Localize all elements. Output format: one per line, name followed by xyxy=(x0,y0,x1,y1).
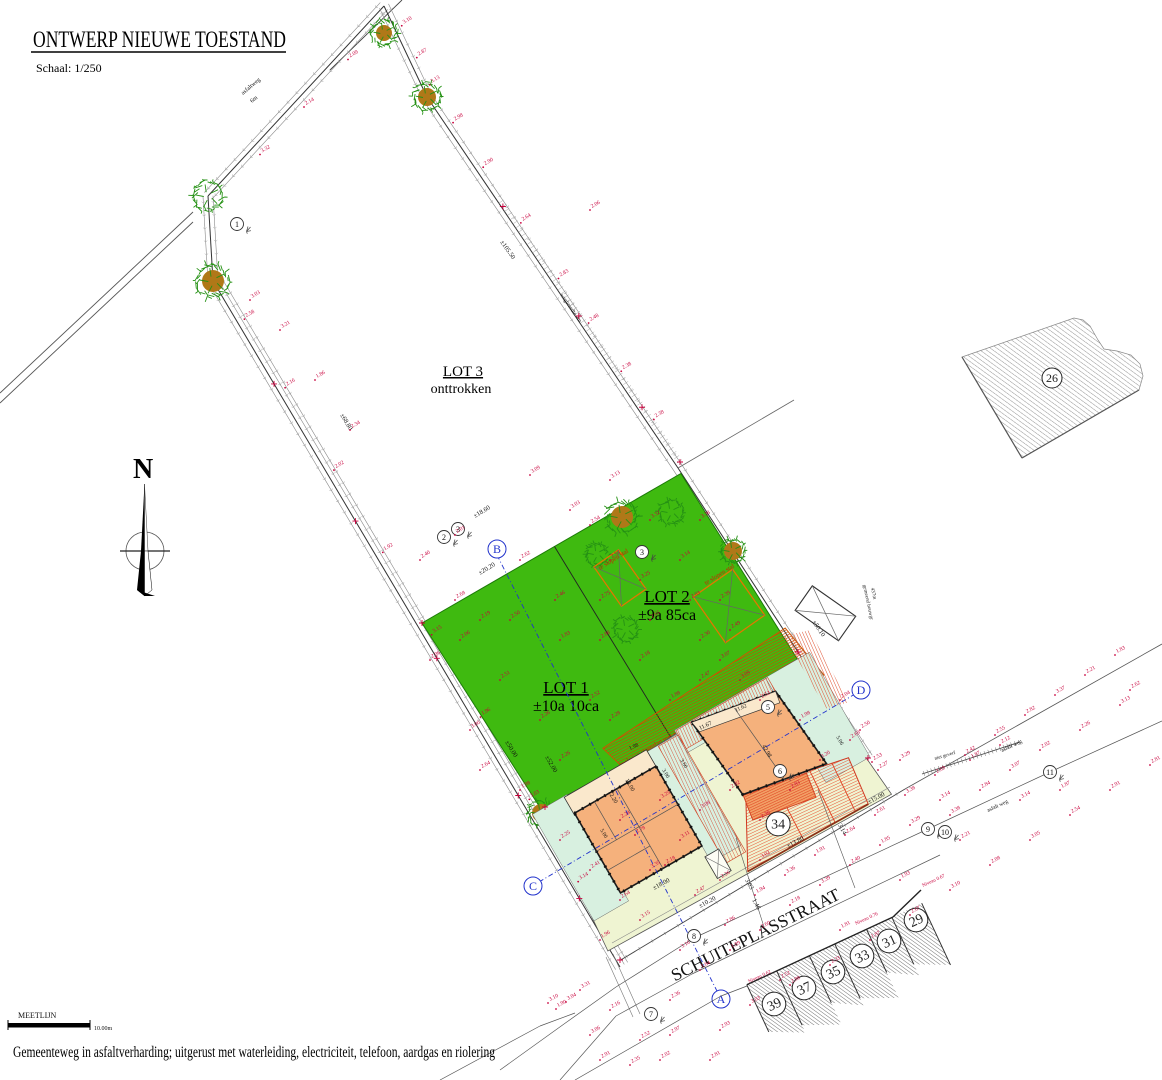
svg-text:2.38: 2.38 xyxy=(621,361,633,371)
svg-text:3.36: 3.36 xyxy=(785,865,797,875)
svg-text:C: C xyxy=(529,879,537,893)
svg-text:2.84: 2.84 xyxy=(980,780,992,790)
svg-text:ONTWERP NIEUWE TOESTAND: ONTWERP NIEUWE TOESTAND xyxy=(33,27,286,52)
svg-text:2.02: 2.02 xyxy=(660,1050,672,1060)
svg-text:niet geverf: niet geverf xyxy=(934,751,956,762)
svg-text:LOT 2: LOT 2 xyxy=(644,587,690,606)
svg-text:2.62: 2.62 xyxy=(520,550,532,560)
svg-text:1: 1 xyxy=(235,220,239,229)
svg-text:2.16: 2.16 xyxy=(610,1000,622,1010)
svg-text:Gemeenteweg in asfaltverhardin: Gemeenteweg in asfaltverharding; uitgeru… xyxy=(13,1044,495,1061)
svg-text:3.21: 3.21 xyxy=(280,320,292,330)
svg-text:2.53: 2.53 xyxy=(872,752,884,762)
svg-text:3.29: 3.29 xyxy=(900,750,912,760)
svg-text:Niveau 0.67: Niveau 0.67 xyxy=(922,874,947,889)
svg-text:LOT 3: LOT 3 xyxy=(443,364,483,380)
svg-text:6: 6 xyxy=(778,767,782,776)
svg-text:±105.50: ±105.50 xyxy=(498,239,516,261)
svg-text:2.91: 2.91 xyxy=(1110,780,1122,790)
svg-text:26: 26 xyxy=(1046,371,1058,385)
svg-text:LOT 1: LOT 1 xyxy=(543,678,589,697)
svg-text:2: 2 xyxy=(442,533,446,542)
svg-text:8: 8 xyxy=(692,932,696,941)
svg-text:9: 9 xyxy=(926,825,930,834)
svg-text:7: 7 xyxy=(649,1010,653,1019)
svg-text:10: 10 xyxy=(941,828,949,837)
svg-text:34: 34 xyxy=(771,818,785,833)
svg-text:3.09: 3.09 xyxy=(530,465,542,475)
svg-text:A: A xyxy=(717,992,726,1006)
svg-text:2.62: 2.62 xyxy=(1130,680,1142,690)
svg-text:11: 11 xyxy=(1046,768,1054,777)
svg-text:2.91: 2.91 xyxy=(600,1050,612,1060)
svg-text:2.02: 2.02 xyxy=(1040,740,1052,750)
svg-text:2.21: 2.21 xyxy=(960,830,972,840)
svg-text:3.38: 3.38 xyxy=(950,805,962,815)
svg-text:2.81: 2.81 xyxy=(710,1050,722,1060)
svg-text:3.29: 3.29 xyxy=(910,815,922,825)
svg-text:1.85: 1.85 xyxy=(880,835,892,845)
svg-text:2.36: 2.36 xyxy=(670,990,682,1000)
svg-text:asfaltweg: asfaltweg xyxy=(240,76,262,96)
svg-text:2.40: 2.40 xyxy=(850,855,862,865)
svg-text:1.94: 1.94 xyxy=(755,885,767,895)
svg-text:3.04: 3.04 xyxy=(566,992,578,1002)
svg-text:2.40: 2.40 xyxy=(420,550,432,560)
svg-text:wegbreedte 4m: wegbreedte 4m xyxy=(558,293,583,325)
svg-text:2.06: 2.06 xyxy=(590,200,602,210)
svg-text:2.54: 2.54 xyxy=(1070,805,1082,815)
svg-text:3.07: 3.07 xyxy=(1010,760,1022,770)
svg-text:±9a 85ca: ±9a 85ca xyxy=(638,607,696,624)
svg-text:2.58: 2.58 xyxy=(244,309,256,319)
svg-text:10.00m: 10.00m xyxy=(94,1026,113,1032)
svg-text:1.92: 1.92 xyxy=(383,542,395,552)
svg-text:2.27: 2.27 xyxy=(878,760,890,770)
svg-text:2.34: 2.34 xyxy=(350,420,362,430)
svg-text:3.31: 3.31 xyxy=(580,980,592,990)
svg-text:1.86: 1.86 xyxy=(315,370,327,380)
svg-text:Schaal: 1/250: Schaal: 1/250 xyxy=(36,61,102,75)
svg-text:onttrokken: onttrokken xyxy=(431,382,492,397)
svg-text:B: B xyxy=(493,542,501,556)
svg-text:2.55: 2.55 xyxy=(995,725,1007,735)
svg-text:3: 3 xyxy=(640,548,644,557)
svg-text:3.38: 3.38 xyxy=(905,785,917,795)
svg-text:2.97: 2.97 xyxy=(670,1025,682,1035)
svg-text:3.03: 3.03 xyxy=(570,500,582,510)
svg-text:MEETLIJN: MEETLIJN xyxy=(18,1011,56,1020)
svg-text:3.37: 3.37 xyxy=(1055,685,1067,695)
svg-text:N: N xyxy=(133,454,153,485)
svg-text:2.64: 2.64 xyxy=(480,760,492,770)
svg-text:1.83: 1.83 xyxy=(1115,645,1127,655)
svg-text:3.13: 3.13 xyxy=(1120,695,1132,705)
svg-text:3.39: 3.39 xyxy=(820,875,832,885)
svg-text:3.03: 3.03 xyxy=(743,878,755,891)
svg-text:2.81: 2.81 xyxy=(1150,755,1162,765)
svg-text:2.93: 2.93 xyxy=(720,1020,732,1030)
svg-text:1.87: 1.87 xyxy=(1060,780,1072,790)
svg-text:3.03: 3.03 xyxy=(250,290,262,300)
svg-text:3.14: 3.14 xyxy=(1020,790,1032,800)
svg-text:2.16: 2.16 xyxy=(285,377,297,387)
svg-text:3.05: 3.05 xyxy=(1030,830,1042,840)
svg-text:2.02: 2.02 xyxy=(334,460,346,470)
svg-text:1.91: 1.91 xyxy=(815,845,827,855)
svg-text:2.21: 2.21 xyxy=(1085,665,1097,675)
svg-text:1.93: 1.93 xyxy=(900,870,912,880)
svg-text:2.90: 2.90 xyxy=(483,157,495,167)
svg-text:3.13: 3.13 xyxy=(610,470,622,480)
svg-text:2.83: 2.83 xyxy=(559,268,571,278)
svg-text:3.10: 3.10 xyxy=(950,880,962,890)
svg-text:2.26: 2.26 xyxy=(1080,720,1092,730)
svg-text:3.10: 3.10 xyxy=(402,15,414,25)
svg-text:3.13: 3.13 xyxy=(430,74,442,84)
svg-text:2.35: 2.35 xyxy=(630,1055,642,1065)
svg-text:2.52: 2.52 xyxy=(640,1030,652,1040)
svg-text:2.08: 2.08 xyxy=(990,855,1002,865)
svg-text:2.87: 2.87 xyxy=(417,47,429,57)
svg-text:6m: 6m xyxy=(249,95,259,105)
svg-text:2.64: 2.64 xyxy=(521,212,533,222)
svg-text:2.50: 2.50 xyxy=(860,720,872,730)
svg-text:2.38: 2.38 xyxy=(654,409,666,419)
svg-text:2.61: 2.61 xyxy=(875,805,887,815)
svg-text:1.90: 1.90 xyxy=(556,999,568,1009)
svg-text:2.98: 2.98 xyxy=(453,112,465,122)
svg-text:3.14: 3.14 xyxy=(940,790,952,800)
svg-text:±18.60: ±18.60 xyxy=(472,504,491,519)
svg-text:2.86: 2.86 xyxy=(725,915,737,925)
svg-text:2.64: 2.64 xyxy=(845,825,857,835)
svg-text:3.06: 3.06 xyxy=(590,1025,602,1035)
svg-text:±20.20: ±20.20 xyxy=(477,561,496,576)
svg-text:D: D xyxy=(857,683,866,697)
svg-text:1.46: 1.46 xyxy=(750,898,762,912)
svg-text:3.10: 3.10 xyxy=(548,993,560,1003)
svg-text:2.82: 2.82 xyxy=(1025,705,1037,715)
svg-text:1.81: 1.81 xyxy=(840,920,852,930)
svg-text:5: 5 xyxy=(766,703,770,712)
svg-text:2.48: 2.48 xyxy=(589,313,601,323)
